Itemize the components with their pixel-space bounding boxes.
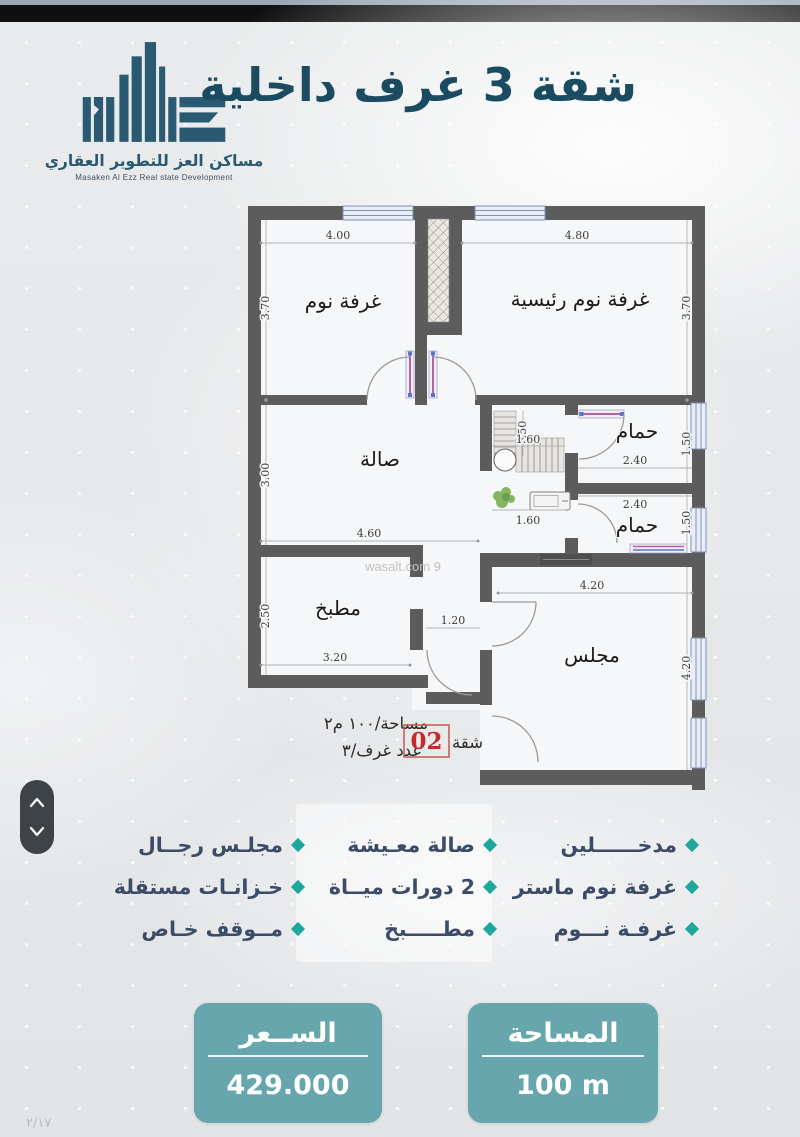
- dim-hall-width: 4.60: [357, 527, 382, 540]
- dim-master-height: 3.70: [680, 296, 693, 321]
- diamond-bullet-icon: [685, 837, 699, 851]
- feature-item: صالة معـيشة: [329, 828, 495, 861]
- page-title: شقة 3 غرف داخلية: [199, 58, 637, 112]
- feature-label: مجلـس رجــال: [138, 833, 283, 857]
- room-label-bathroom-1: حمام: [616, 419, 658, 443]
- feature-label: 2 دورات ميــاة: [329, 875, 475, 899]
- feature-item: مــوقف خـاص: [114, 912, 303, 945]
- feature-label: مــوقف خـاص: [141, 917, 283, 941]
- diamond-bullet-icon: [291, 879, 305, 893]
- dim-bath1-height: 1.50: [680, 432, 693, 457]
- feature-label: مطـــــبخ: [384, 917, 475, 941]
- feature-label: خـزانـات مستقلة: [114, 875, 283, 899]
- dim-corridor-width-2: 1.60: [516, 514, 541, 527]
- closet-shaft: [428, 219, 449, 322]
- feature-label: صالة معـيشة: [347, 833, 475, 857]
- brand-name-english: Masaken Al Ezz Real state Development: [44, 173, 264, 182]
- dim-kitchen-width: 3.20: [323, 651, 348, 664]
- flyer-canvas: مساكن العز للتطوير العقاري Masaken Al Ez…: [0, 0, 800, 1137]
- scroll-up-button[interactable]: [28, 795, 46, 809]
- area-value: 100 m: [468, 1057, 658, 1115]
- diamond-bullet-icon: [483, 921, 497, 935]
- dim-hall-height: 3.00: [259, 463, 272, 488]
- room-label-bedroom: غرفة نوم: [305, 289, 381, 313]
- unit-number: 02: [410, 728, 442, 755]
- column-symbol: [494, 449, 516, 471]
- scroll-down-button[interactable]: [28, 825, 46, 839]
- room-label-master-bedroom: غرفة نوم رئيسية: [511, 287, 650, 311]
- room-label-bathroom-2: حمام: [616, 513, 658, 537]
- feature-label: مدخــــــلين: [560, 833, 677, 857]
- price-box: الســعر 429.000: [194, 1003, 382, 1123]
- brand-name-arabic: مساكن العز للتطوير العقاري: [44, 152, 264, 170]
- diamond-bullet-icon: [483, 837, 497, 851]
- diamond-bullet-icon: [685, 879, 699, 893]
- feature-label: غرفة نوم ماستر: [513, 875, 677, 899]
- price-label: الســعر: [194, 1013, 382, 1055]
- dim-passage-width: 1.20: [441, 614, 466, 627]
- diamond-bullet-icon: [483, 879, 497, 893]
- feature-label: غرفـة نـــوم: [554, 917, 677, 941]
- features-column-middle: صالة معـيشة 2 دورات ميــاة مطـــــبخ: [329, 828, 495, 945]
- dim-majlis-height: 4.20: [680, 656, 693, 681]
- diamond-bullet-icon: [685, 921, 699, 935]
- room-label-hall: صالة: [360, 447, 400, 471]
- dim-bedroom-height: 3.70: [259, 296, 272, 321]
- dim-bath2-width: 2.40: [623, 498, 648, 511]
- diamond-bullet-icon: [291, 837, 305, 851]
- dim-bath1-width: 2.40: [623, 454, 648, 467]
- feature-item: مدخــــــلين: [513, 828, 697, 861]
- sink-counter: [530, 492, 570, 510]
- bath-window-bar: [630, 544, 687, 553]
- price-value: 429.000: [194, 1057, 382, 1115]
- diamond-bullet-icon: [291, 921, 305, 935]
- chevron-down-icon: [29, 826, 45, 837]
- scroll-control[interactable]: [20, 780, 54, 854]
- dim-bedroom-width: 4.00: [326, 229, 351, 242]
- watermark: wasalt.com 9: [364, 559, 441, 574]
- feature-item: 2 دورات ميــاة: [329, 870, 495, 903]
- features-column-left: مجلـس رجــال خـزانـات مستقلة مــوقف خـاص: [114, 828, 303, 945]
- area-box: المساحة 100 m: [468, 1003, 658, 1123]
- feature-item: غرفـة نـــوم: [513, 912, 697, 945]
- dim-kitchen-height: 2.50: [259, 604, 272, 629]
- browser-top-bar: [0, 5, 800, 22]
- chevron-up-icon: [29, 797, 45, 808]
- feature-item: غرفة نوم ماستر: [513, 870, 697, 903]
- dim-master-width: 4.80: [565, 229, 590, 242]
- dim-corridor-width: 1.60: [516, 433, 541, 446]
- feature-item: مطـــــبخ: [329, 912, 495, 945]
- page-marker: ٢/١٧: [26, 1116, 51, 1131]
- dim-majlis-width: 4.20: [580, 579, 605, 592]
- room-label-majlis: مجلس: [564, 643, 620, 667]
- unit-annotation: مساحة/١٠٠ م٢ عدد غرف/٣ 02 شقة: [324, 714, 483, 761]
- features-column-right: مدخــــــلين غرفة نوم ماستر غرفـة نـــوم: [513, 828, 697, 945]
- area-label: المساحة: [468, 1013, 658, 1055]
- feature-item: مجلـس رجــال: [114, 828, 303, 861]
- dim-bath2-height: 1.50: [680, 511, 693, 536]
- floor-plan: 4.00 4.80 3.70 3.70 3.00 4.60 1.50 1.60 …: [240, 198, 710, 790]
- unit-label: شقة: [452, 733, 483, 752]
- room-label-kitchen: مطبخ: [315, 596, 361, 620]
- feature-item: خـزانـات مستقلة: [114, 870, 303, 903]
